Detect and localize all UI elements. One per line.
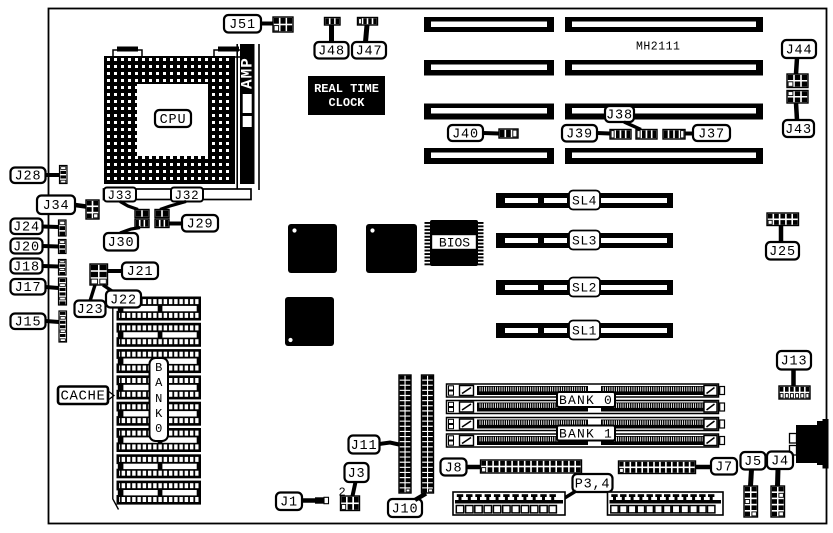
- svg-text:J8: J8: [445, 461, 463, 476]
- svg-text:J11: J11: [351, 439, 378, 454]
- svg-text:J10: J10: [392, 502, 419, 517]
- svg-text:J48: J48: [318, 45, 345, 60]
- svg-text:K: K: [155, 407, 163, 421]
- svg-text:BANK 1: BANK 1: [559, 426, 613, 441]
- svg-text:J23: J23: [77, 303, 104, 318]
- svg-text:J7: J7: [715, 461, 733, 476]
- svg-text:J33: J33: [108, 189, 133, 203]
- svg-text:J18: J18: [13, 260, 40, 275]
- svg-text:J47: J47: [356, 45, 383, 60]
- svg-text:SL2: SL2: [572, 281, 597, 296]
- svg-text:SL4: SL4: [572, 194, 597, 209]
- svg-text:J3: J3: [348, 467, 366, 482]
- svg-text:REAL TIME: REAL TIME: [314, 82, 379, 96]
- svg-text:J28: J28: [15, 170, 42, 185]
- svg-text:J32: J32: [175, 189, 200, 203]
- svg-text:P3,4: P3,4: [575, 477, 611, 492]
- svg-text:J5: J5: [744, 455, 762, 470]
- svg-text:J21: J21: [127, 265, 154, 280]
- svg-text:J39: J39: [566, 128, 593, 143]
- svg-text:0: 0: [155, 422, 162, 436]
- svg-text:CPU: CPU: [160, 113, 187, 128]
- svg-text:J51: J51: [229, 18, 256, 33]
- svg-text:J22: J22: [110, 293, 137, 308]
- svg-text:BANK 0: BANK 0: [559, 393, 613, 408]
- svg-text:J1: J1: [280, 496, 298, 511]
- svg-text:J13: J13: [781, 355, 808, 370]
- svg-text:N: N: [155, 392, 162, 406]
- svg-text:J34: J34: [43, 199, 70, 214]
- svg-text:J15: J15: [15, 316, 42, 331]
- svg-text:CACHE: CACHE: [60, 389, 105, 405]
- svg-text:SL3: SL3: [572, 234, 597, 249]
- svg-text:MH2111: MH2111: [636, 41, 680, 54]
- svg-text:J24: J24: [13, 221, 40, 236]
- svg-text:J40: J40: [452, 127, 479, 142]
- svg-text:CLOCK: CLOCK: [328, 96, 365, 110]
- svg-text:J38: J38: [606, 108, 633, 123]
- svg-text:J17: J17: [15, 281, 42, 296]
- svg-text:SL1: SL1: [572, 324, 597, 339]
- svg-text:J30: J30: [108, 236, 135, 251]
- svg-text:J4: J4: [771, 455, 789, 470]
- svg-text:J37: J37: [698, 127, 725, 142]
- svg-text:BIOS: BIOS: [439, 236, 470, 251]
- svg-text:J20: J20: [13, 240, 40, 255]
- svg-text:J25: J25: [769, 245, 796, 260]
- svg-text:A: A: [155, 376, 163, 390]
- svg-text:J29: J29: [187, 218, 214, 233]
- svg-text:AMP: AMP: [239, 57, 257, 89]
- svg-text:J43: J43: [785, 123, 812, 138]
- svg-text:B: B: [155, 361, 162, 375]
- svg-text:J44: J44: [786, 43, 813, 58]
